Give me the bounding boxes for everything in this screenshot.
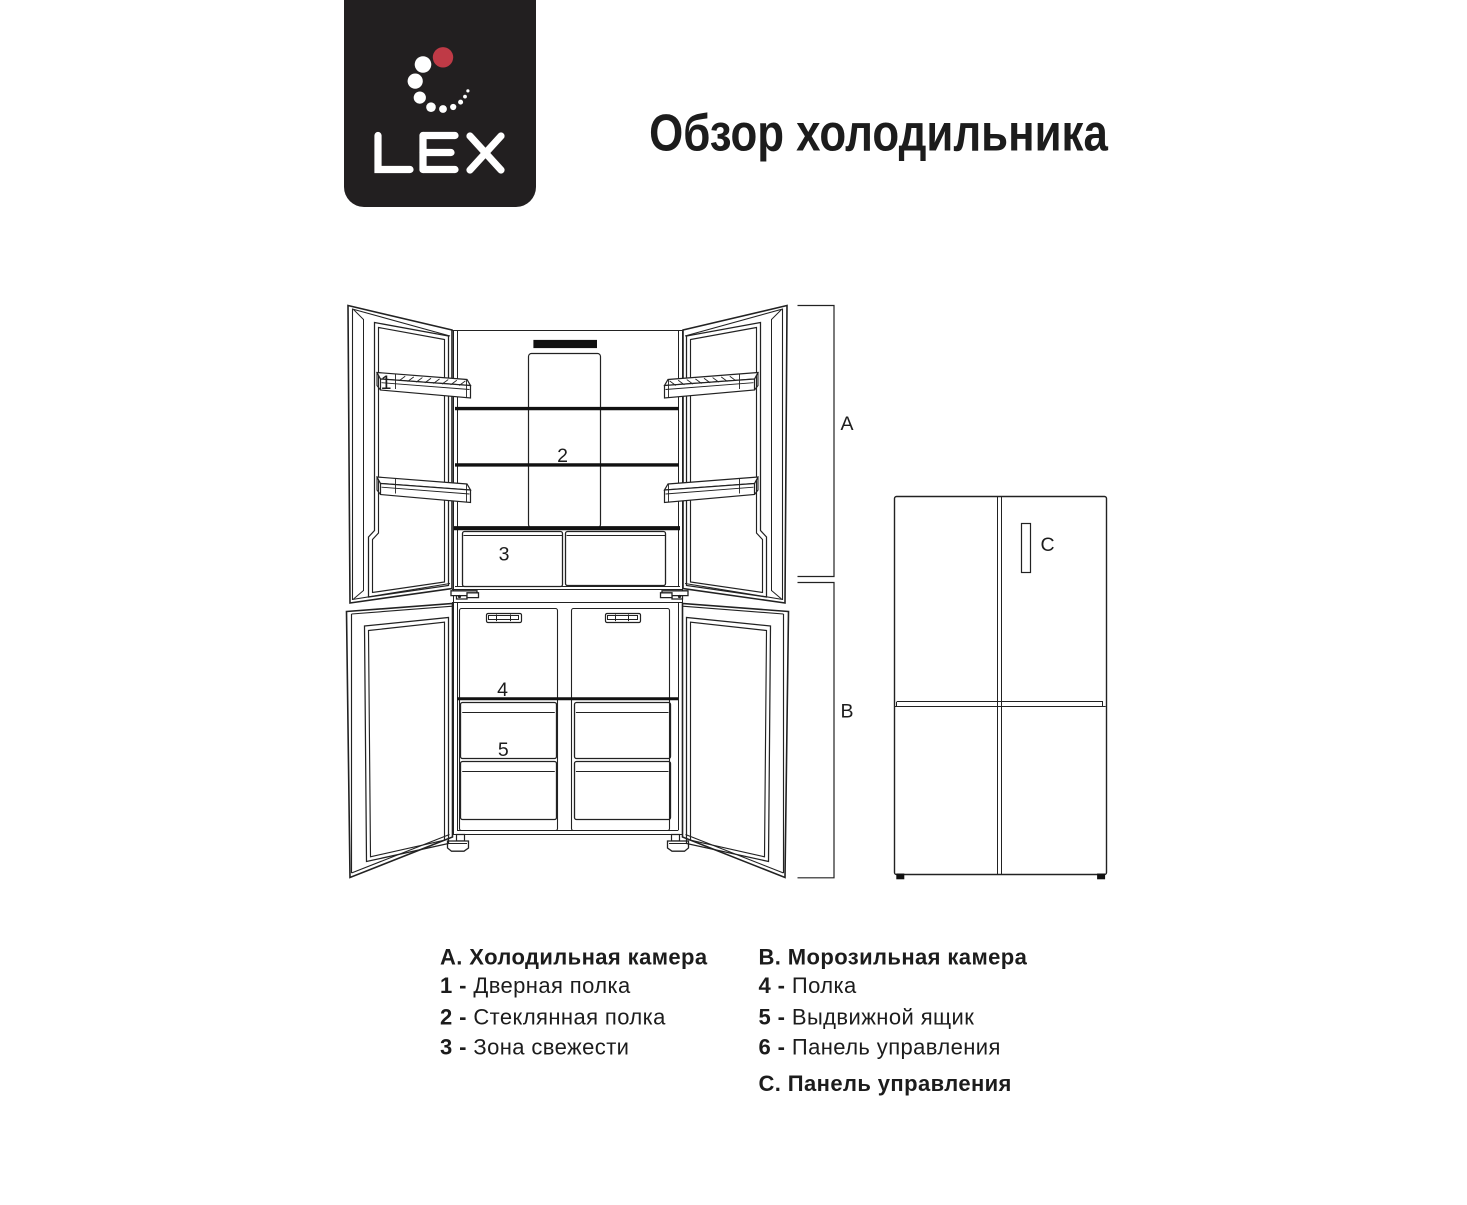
svg-text:1: 1 xyxy=(381,372,392,394)
svg-text:Обзор холодильника: Обзор холодильника xyxy=(649,104,1109,162)
svg-text:3: 3 xyxy=(499,544,510,566)
svg-text:3 - Зона свежести: 3 - Зона свежести xyxy=(440,1035,629,1060)
svg-text:2: 2 xyxy=(557,445,568,467)
svg-text:C: C xyxy=(1040,534,1054,556)
svg-text:5 - Выдвижной ящик: 5 - Выдвижной ящик xyxy=(759,1005,975,1030)
svg-text:А. Холодильная камера: А. Холодильная камера xyxy=(440,945,708,970)
svg-text:4 - Полка: 4 - Полка xyxy=(759,973,858,998)
svg-text:5: 5 xyxy=(498,739,509,761)
svg-text:1 - Дверная полка: 1 - Дверная полка xyxy=(440,973,631,998)
svg-text:B: B xyxy=(840,701,853,723)
svg-text:В. Морозильная камера: В. Морозильная камера xyxy=(759,945,1028,970)
svg-text:2 - Стеклянная полка: 2 - Стеклянная полка xyxy=(440,1005,666,1030)
svg-text:4: 4 xyxy=(497,679,508,701)
svg-text:С. Панель управления: С. Панель управления xyxy=(759,1071,1012,1096)
svg-text:A: A xyxy=(840,413,853,435)
svg-text:6 - Панель управления: 6 - Панель управления xyxy=(759,1035,1001,1060)
